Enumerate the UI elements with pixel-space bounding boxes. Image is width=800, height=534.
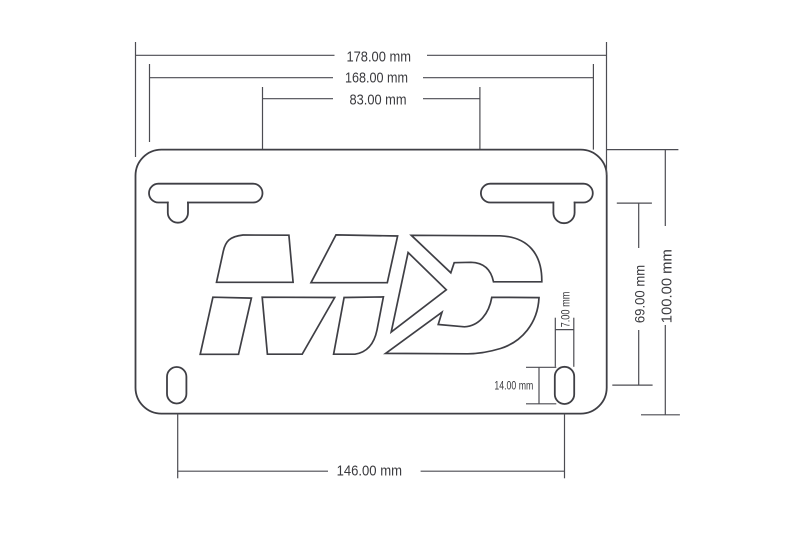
svg-text:83.00 mm: 83.00 mm xyxy=(350,92,407,109)
svg-text:69.00 mm: 69.00 mm xyxy=(631,265,647,323)
svg-text:168.00 mm: 168.00 mm xyxy=(345,69,408,86)
svg-text:14.00 mm: 14.00 mm xyxy=(494,378,533,392)
svg-text:7.00 mm: 7.00 mm xyxy=(558,292,572,328)
svg-text:100.00 mm: 100.00 mm xyxy=(659,249,676,323)
svg-text:178.00 mm: 178.00 mm xyxy=(346,48,411,65)
svg-text:146.00 mm: 146.00 mm xyxy=(337,463,402,480)
